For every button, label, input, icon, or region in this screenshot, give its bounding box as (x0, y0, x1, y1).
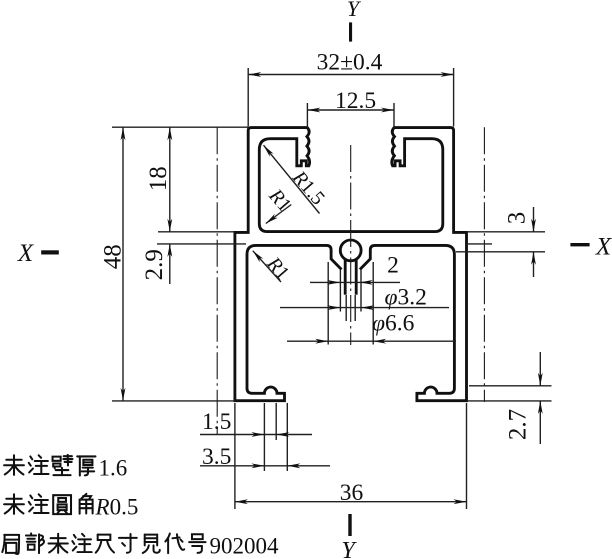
svg-text:3: 3 (504, 212, 531, 225)
svg-text:2: 2 (387, 253, 399, 279)
svg-text:1.5: 1.5 (202, 409, 231, 435)
svg-text:36: 36 (340, 480, 364, 506)
svg-text:902004: 902004 (210, 534, 280, 559)
svg-text:φ3.2: φ3.2 (385, 285, 427, 311)
svg-text:48: 48 (100, 244, 127, 269)
svg-text:R0.5: R0.5 (95, 495, 139, 520)
svg-text:X: X (17, 240, 35, 267)
svg-text:3.5: 3.5 (202, 444, 231, 470)
svg-text:X: X (595, 234, 612, 261)
svg-text:18: 18 (145, 166, 172, 191)
svg-text:2.7: 2.7 (505, 409, 532, 440)
svg-text:2.9: 2.9 (141, 249, 168, 280)
svg-text:φ6.6: φ6.6 (372, 311, 415, 337)
svg-text:12.5: 12.5 (335, 88, 376, 114)
svg-text:32±0.4: 32±0.4 (317, 50, 383, 76)
svg-text:1.6: 1.6 (99, 456, 128, 481)
